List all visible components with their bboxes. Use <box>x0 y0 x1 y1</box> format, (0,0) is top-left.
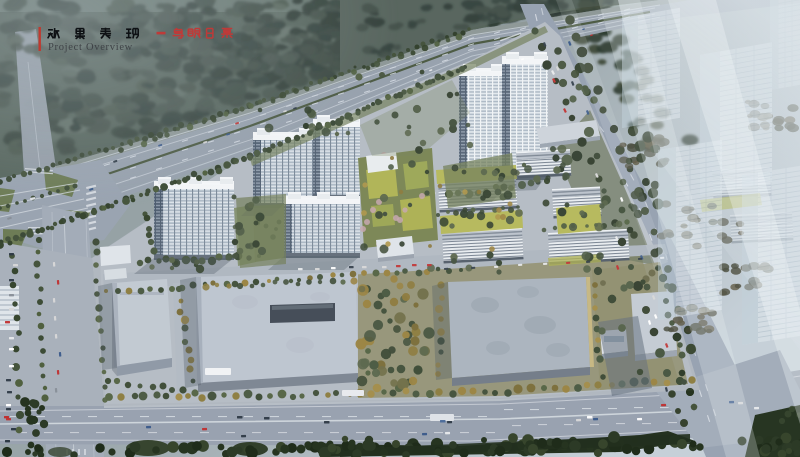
svg-text:Project Overview: Project Overview <box>48 42 133 53</box>
